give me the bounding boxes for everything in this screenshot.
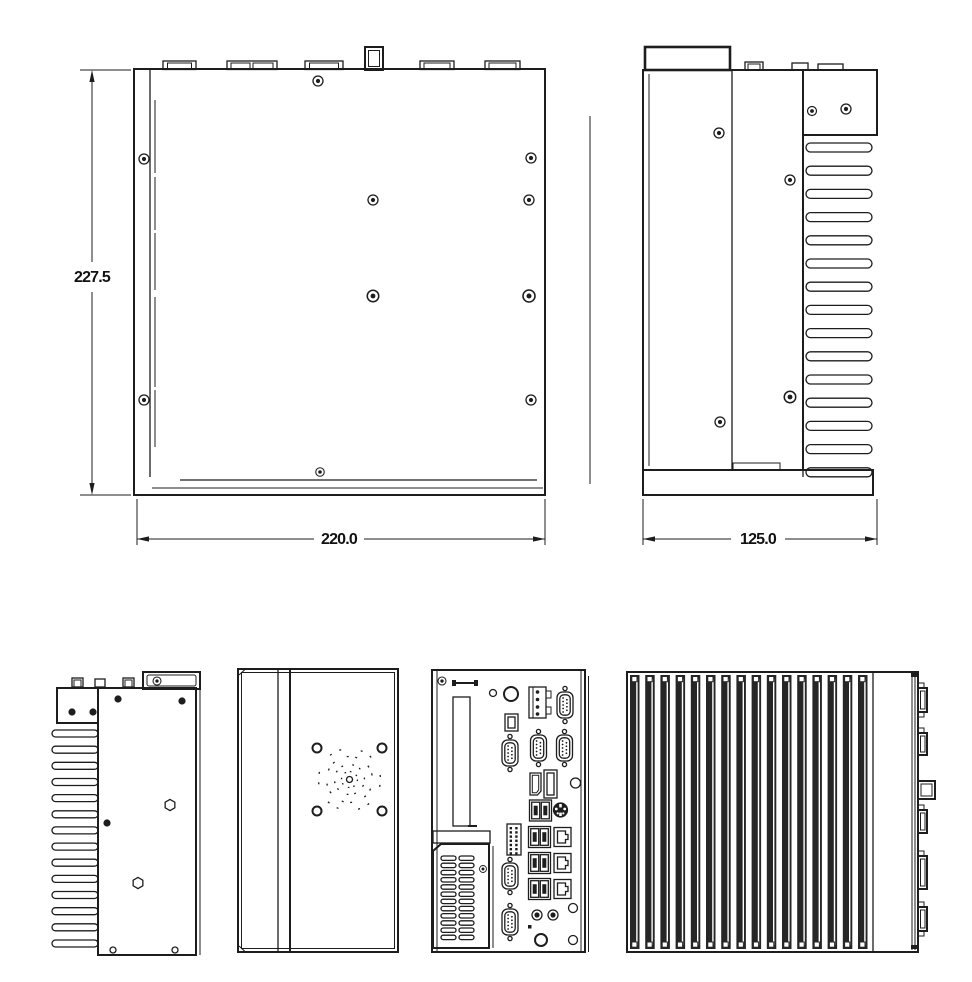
technical-drawing-page: 227.5 220.0 125.0 (0, 0, 972, 982)
top-view-screw-holes (139, 76, 536, 476)
side-view-heatsink (643, 47, 877, 495)
body-panel (98, 688, 196, 955)
antenna-hole (569, 904, 578, 913)
db9-serial-port (502, 903, 518, 940)
orthographic-views-drawing: 227.5 220.0 125.0 (0, 0, 972, 982)
antenna-hole (535, 934, 547, 946)
audio-jacks (532, 910, 558, 920)
antenna-hole (571, 778, 581, 788)
top-step (57, 688, 98, 723)
displayport (544, 770, 557, 798)
usb-stack (529, 853, 551, 874)
ps2-port (553, 802, 568, 817)
slot-cover (433, 831, 490, 843)
height-dimension-label: 227.5 (74, 269, 111, 286)
dc-terminal-block (529, 687, 551, 718)
usb-stack (529, 827, 551, 848)
top-edge-connectors-small (72, 678, 134, 687)
heatsink-top-block (803, 70, 877, 135)
heatsink-face-view (627, 672, 935, 952)
width-dimension-label: 220.0 (321, 531, 358, 548)
top-view-panel-lines (150, 69, 543, 488)
psu-vent-area (433, 844, 493, 948)
top-raised-block (645, 47, 730, 70)
fan-side-view (238, 669, 398, 952)
side-top-connectors (745, 62, 843, 70)
usb-stack (529, 879, 551, 900)
heatsink-fins-right (803, 135, 872, 477)
dim-height: 227.5 (74, 70, 131, 495)
expansion-slot-bracket (453, 697, 470, 826)
db9-serial-port (502, 734, 518, 771)
base-plate (643, 470, 873, 495)
fan-grille (313, 744, 387, 816)
power-button (504, 687, 518, 701)
db9-serial-port (557, 729, 573, 766)
side-view-heatsink-mirrored (52, 672, 285, 982)
db9-serial-port (557, 686, 573, 723)
db9-serial-port (531, 729, 547, 766)
rear-io-view (432, 670, 589, 952)
heatsink-fins-front (630, 675, 868, 949)
dim-depth: 125.0 (643, 499, 877, 548)
dim-width: 220.0 (137, 499, 545, 548)
mini-usb-port (505, 714, 518, 731)
mounting-holes (68, 695, 284, 982)
top-view (134, 47, 545, 495)
panel-screw (438, 677, 446, 685)
side-connector-bumps (918, 683, 935, 936)
ethernet-port (554, 828, 571, 847)
power-led (490, 690, 497, 697)
heatsink-fins-left (52, 730, 98, 947)
top-edge-connectors (163, 47, 520, 70)
depth-dimension-label: 125.0 (740, 531, 777, 548)
handle-slot (452, 680, 478, 686)
pin-header (507, 824, 521, 855)
ethernet-port (554, 854, 571, 873)
ethernet-port (554, 880, 571, 899)
fan-view-outline (238, 669, 398, 952)
db9-serial-port (502, 857, 518, 894)
hdmi-port (530, 773, 541, 795)
antenna-hole (569, 936, 578, 945)
usb-stack (530, 800, 552, 821)
top-view-outline (134, 69, 545, 495)
